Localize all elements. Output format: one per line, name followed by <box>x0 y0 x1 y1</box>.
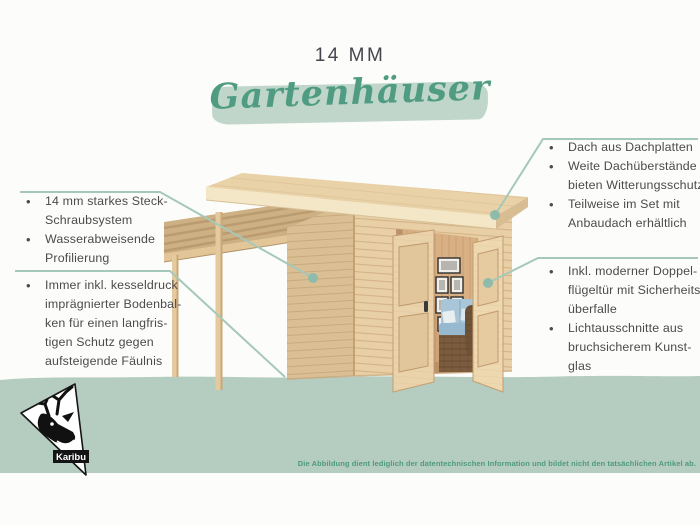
right-door-upper-panel <box>478 249 498 306</box>
connector-dot-door <box>483 278 493 288</box>
left-door-upper-panel <box>399 243 428 306</box>
side-wall-planks <box>287 200 354 379</box>
connector-dot-roof <box>490 210 500 220</box>
feature-list-right-top: Dach aus Dachplatten Weite Dachüberständ… <box>545 138 700 233</box>
feature-item: Wasserabweisende Profilierung <box>22 230 202 268</box>
feature-list-right-bottom: Inkl. moderner Doppel- flügeltür mit Sic… <box>545 262 700 376</box>
feature-item: Lichtausschnitte aus bruchsicherem Kunst… <box>545 319 700 376</box>
feature-item: Weite Dachüberstände bieten Witterungssc… <box>545 157 700 195</box>
door-handle <box>424 301 428 312</box>
feature-item: Immer inkl. kesseldruck imprägnierter Bo… <box>22 276 202 371</box>
feature-item: Inkl. moderner Doppel- flügeltür mit Sic… <box>545 262 700 319</box>
infographic-page: Karibu 14 MM Gartenhäuser 14 mm starkes … <box>0 0 700 525</box>
feature-item: Teilweise im Set mit Anbaudach erhältlic… <box>545 195 700 233</box>
post-shade <box>221 212 223 390</box>
connector-dot-wall <box>308 273 318 283</box>
feature-list-left-top: 14 mm starkes Steck- Schraubsystem Wasse… <box>22 192 202 268</box>
logo-label: Karibu <box>56 452 86 463</box>
feature-item: 14 mm starkes Steck- Schraubsystem <box>22 192 202 230</box>
feature-list-left-bottom: Immer inkl. kesseldruck imprägnierter Bo… <box>22 276 202 371</box>
feature-item: Dach aus Dachplatten <box>545 138 700 157</box>
disclaimer-text: Die Abbildung dient lediglich der datent… <box>298 459 696 469</box>
right-door-lower-panel <box>478 311 498 367</box>
pillow <box>442 310 456 324</box>
left-door-lower-panel <box>399 313 428 372</box>
